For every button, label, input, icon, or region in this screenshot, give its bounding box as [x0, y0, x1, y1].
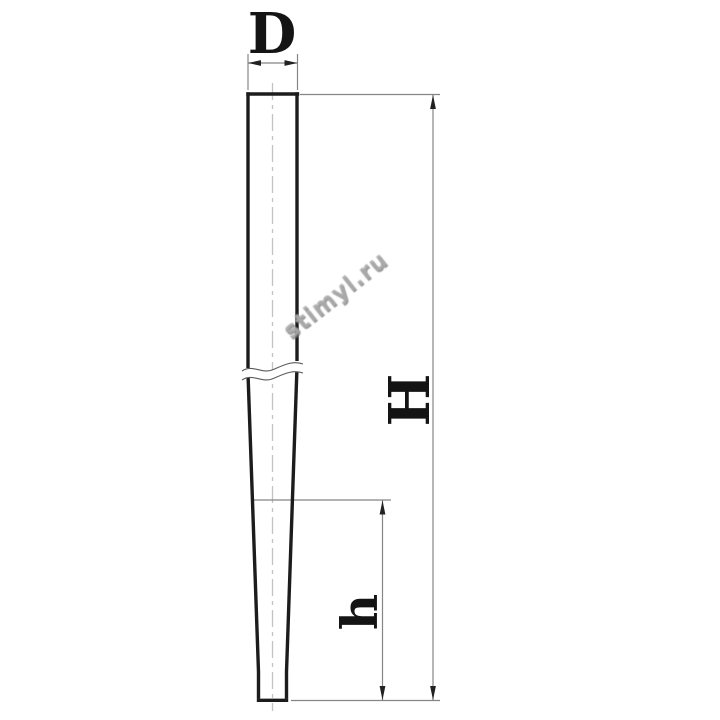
diameter-label: D: [248, 1, 297, 67]
partial-height-label: h: [330, 594, 389, 630]
arrow-up-icon: [380, 501, 386, 515]
technical-drawing-canvas: D H h stimyl.ru stimyl.ru: [0, 0, 720, 720]
rod-dimension-diagram: D H h stimyl.ru stimyl.ru: [0, 0, 720, 720]
arrow-up-icon: [430, 95, 436, 109]
arrow-down-icon: [430, 686, 436, 700]
total-height-label: H: [377, 374, 443, 427]
arrow-down-icon: [380, 686, 386, 700]
